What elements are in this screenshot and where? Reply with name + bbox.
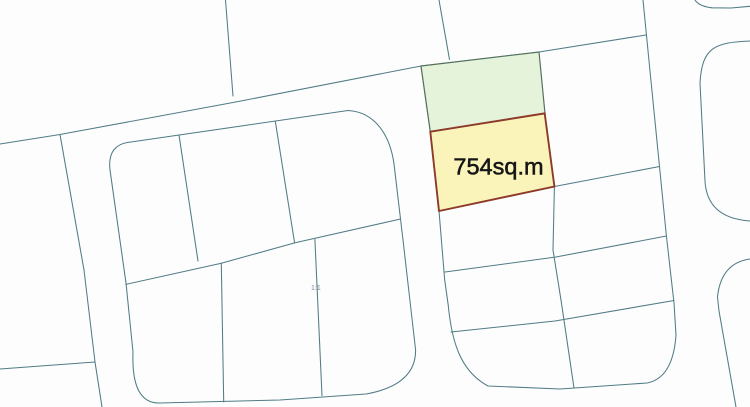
svg-text:754sq.m: 754sq.m (453, 154, 543, 180)
svg-text:1:1: 1:1 (311, 285, 321, 292)
